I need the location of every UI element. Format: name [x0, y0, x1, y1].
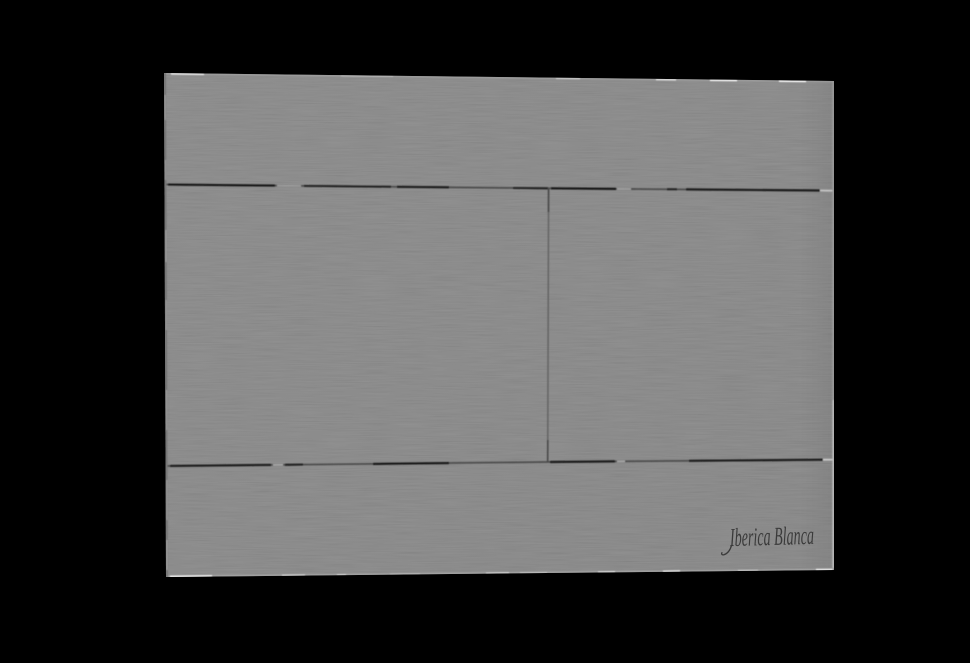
svg-text:Iberica Blanca: Iberica Blanca	[729, 521, 814, 552]
